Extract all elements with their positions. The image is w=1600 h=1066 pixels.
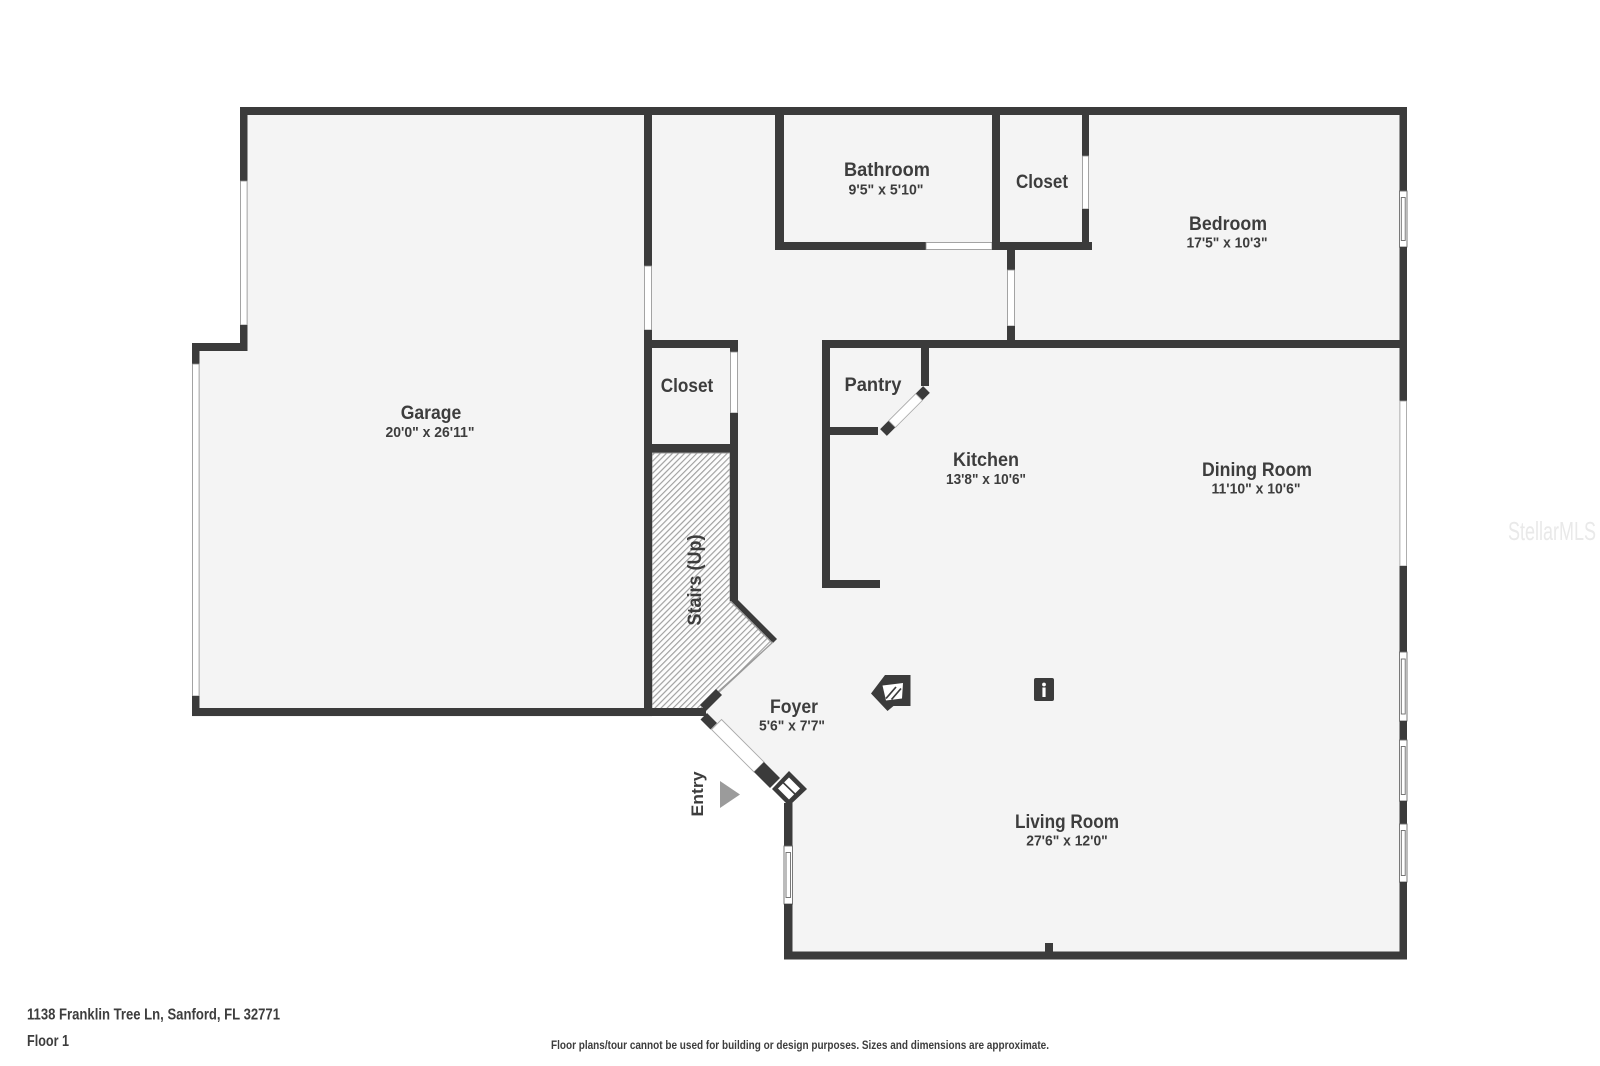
- svg-text:13'8" x 10'6": 13'8" x 10'6": [946, 472, 1026, 488]
- svg-text:Foyer: Foyer: [770, 697, 819, 718]
- svg-text:Floor plans/tour cannot be use: Floor plans/tour cannot be used for buil…: [551, 1038, 1049, 1052]
- svg-text:Entry: Entry: [688, 771, 707, 817]
- svg-text:Living Room: Living Room: [1015, 812, 1119, 833]
- svg-text:9'5" x 5'10": 9'5" x 5'10": [849, 183, 924, 199]
- svg-text:Garage: Garage: [401, 403, 462, 424]
- svg-text:1138 Franklin Tree Ln, Sanford: 1138 Franklin Tree Ln, Sanford, FL 32771: [27, 1007, 280, 1024]
- svg-text:Bathroom: Bathroom: [844, 160, 930, 181]
- svg-text:Bedroom: Bedroom: [1189, 214, 1267, 235]
- svg-text:StellarMLS: StellarMLS: [1508, 516, 1596, 546]
- svg-text:11'10" x 10'6": 11'10" x 10'6": [1212, 482, 1301, 498]
- svg-text:17'5" x 10'3": 17'5" x 10'3": [1187, 236, 1268, 252]
- svg-text:Closet: Closet: [1016, 172, 1069, 193]
- svg-text:5'6" x 7'7": 5'6" x 7'7": [759, 719, 825, 735]
- svg-text:Floor 1: Floor 1: [27, 1033, 69, 1050]
- svg-text:Dining Room: Dining Room: [1202, 460, 1312, 481]
- svg-text:Stairs (Up): Stairs (Up): [685, 535, 706, 626]
- svg-text:Kitchen: Kitchen: [953, 450, 1019, 471]
- svg-text:20'0" x 26'11": 20'0" x 26'11": [386, 425, 475, 441]
- svg-text:Closet: Closet: [661, 376, 714, 397]
- svg-text:Pantry: Pantry: [845, 375, 902, 396]
- svg-text:27'6" x 12'0": 27'6" x 12'0": [1026, 834, 1108, 850]
